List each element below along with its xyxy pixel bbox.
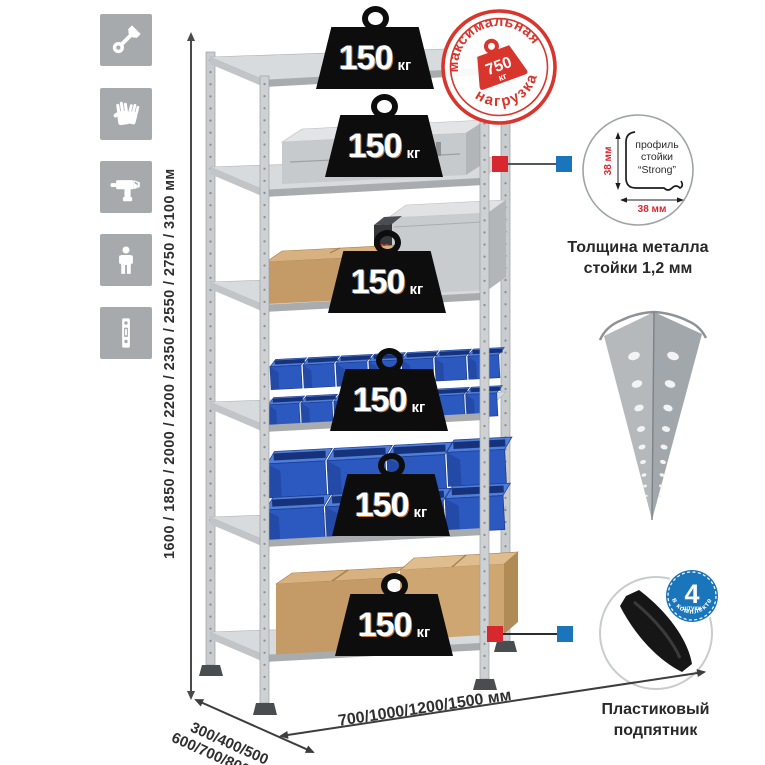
product-infographic: 1600 / 1850 / 2000 / 2200 / 2350 / 2550 … — [0, 0, 765, 765]
shelf-weight-badge: 150кг — [335, 573, 453, 656]
connector-line-bottom — [501, 633, 561, 635]
weight-value: 150 — [339, 39, 393, 78]
profile-caption-line1: Толщина металла — [553, 238, 723, 259]
weight-unit: кг — [411, 399, 425, 416]
shelf-weight-badge: 150кг — [330, 348, 448, 431]
weight-value: 150 — [355, 486, 409, 525]
connector-marker-blue-top — [556, 156, 572, 172]
weight-unit: кг — [409, 281, 423, 298]
wrench-icon-glyph — [106, 20, 146, 60]
badge-value: 4 — [684, 579, 699, 609]
drill-icon — [100, 161, 152, 213]
weight-value: 150 — [353, 381, 407, 420]
upright-post-icon — [100, 307, 152, 359]
connector-marker-red-top — [492, 156, 508, 172]
weight-value: 150 — [358, 606, 412, 645]
profile-label-2: стойки — [641, 151, 673, 163]
upright-post-icon-glyph — [106, 313, 146, 353]
gloves-icon — [100, 88, 152, 140]
profile-caption: Толщина металла стойки 1,2 мм — [553, 238, 723, 280]
shelf-weight-badge: 150кг — [332, 453, 450, 536]
connector-line-top — [505, 163, 559, 165]
gloves-icon-glyph — [106, 94, 146, 134]
connector-marker-red-bottom — [487, 626, 503, 642]
quantity-badge: 4 штуки в комплекте — [662, 566, 722, 626]
weight-value: 150 — [348, 127, 402, 166]
upright-post-illustration — [588, 300, 723, 525]
shelf-weight-badge: 150кг — [328, 230, 446, 313]
weight-unit: кг — [406, 145, 420, 162]
weight-unit: кг — [416, 624, 430, 641]
person-icon-glyph — [106, 240, 146, 280]
profile-label-1: профиль — [635, 139, 679, 151]
profile-caption-line2: стойки 1,2 мм — [553, 259, 723, 280]
drill-icon-glyph — [106, 167, 146, 207]
foot-caption-line1: Пластиковый — [568, 700, 743, 721]
weight-unit: кг — [397, 57, 411, 74]
max-load-stamp: максимальная нагрузка 750 кг — [436, 4, 562, 130]
connector-marker-blue-bottom — [557, 626, 573, 642]
foot-caption-line2: подпятник — [568, 721, 743, 742]
profile-label-3: “Strong” — [638, 164, 676, 176]
shelf-weight-badge: 150кг — [325, 94, 443, 177]
profile-detail-circle: 38 мм 38 мм профиль стойки “Strong” — [578, 110, 700, 232]
weight-value: 150 — [351, 263, 405, 302]
profile-dim-bottom: 38 мм — [638, 204, 667, 215]
height-dimension-label: 1600 / 1850 / 2000 / 2200 / 2350 / 2550 … — [158, 30, 182, 698]
shelf-weight-badge: 150кг — [316, 6, 434, 89]
wrench-icon — [100, 14, 152, 66]
person-icon — [100, 234, 152, 286]
weight-unit: кг — [413, 504, 427, 521]
profile-dim-side: 38 мм — [603, 147, 614, 176]
foot-caption: Пластиковый подпятник — [568, 700, 743, 742]
